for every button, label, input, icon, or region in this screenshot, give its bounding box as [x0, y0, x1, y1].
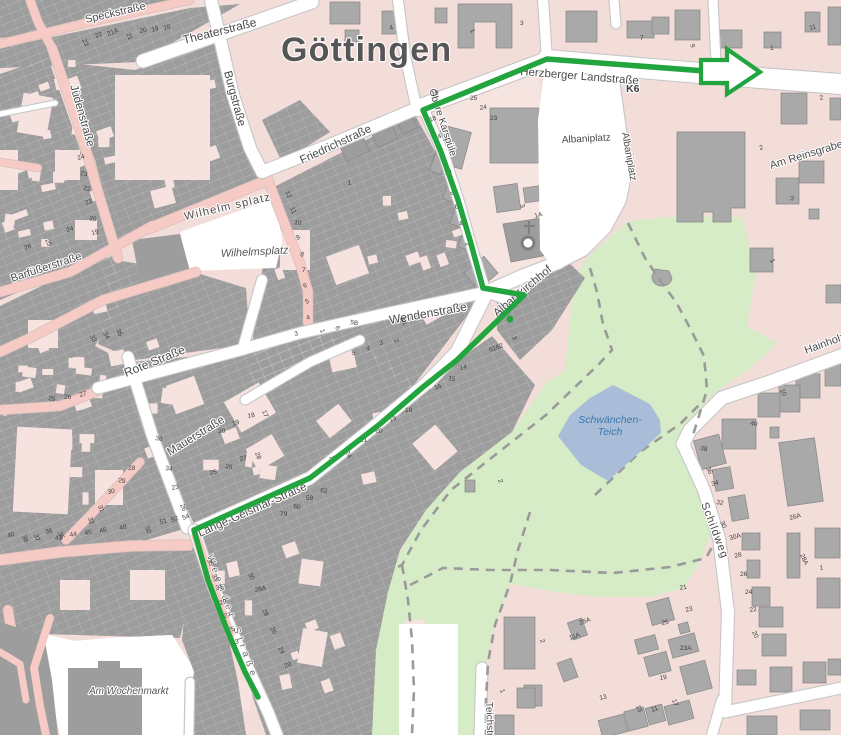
svg-text:79: 79 [280, 511, 288, 518]
svg-text:28: 28 [128, 465, 136, 472]
svg-text:26: 26 [64, 394, 72, 401]
svg-text:43: 43 [55, 535, 63, 542]
svg-text:23A: 23A [680, 645, 692, 652]
svg-text:Teichstraße: Teichstraße [483, 702, 496, 735]
svg-text:59: 59 [306, 495, 314, 502]
svg-text:5B: 5B [350, 319, 359, 327]
svg-text:24: 24 [745, 589, 753, 596]
svg-text:7: 7 [640, 35, 644, 42]
svg-text:18: 18 [405, 407, 413, 414]
svg-text:1: 1 [770, 45, 774, 52]
svg-text:Teich: Teich [598, 426, 623, 438]
svg-text:26: 26 [740, 571, 748, 578]
svg-text:K6: K6 [626, 83, 640, 95]
svg-text:25: 25 [470, 95, 478, 102]
svg-text:20: 20 [218, 428, 226, 435]
svg-text:23: 23 [490, 115, 498, 122]
svg-text:Schwänchen-: Schwänchen- [578, 414, 642, 426]
svg-text:Göttingen: Göttingen [281, 31, 452, 69]
svg-text:Am Wochenmarkt: Am Wochenmarkt [88, 686, 170, 697]
svg-text:3: 3 [520, 20, 524, 27]
svg-text:7: 7 [302, 267, 306, 274]
